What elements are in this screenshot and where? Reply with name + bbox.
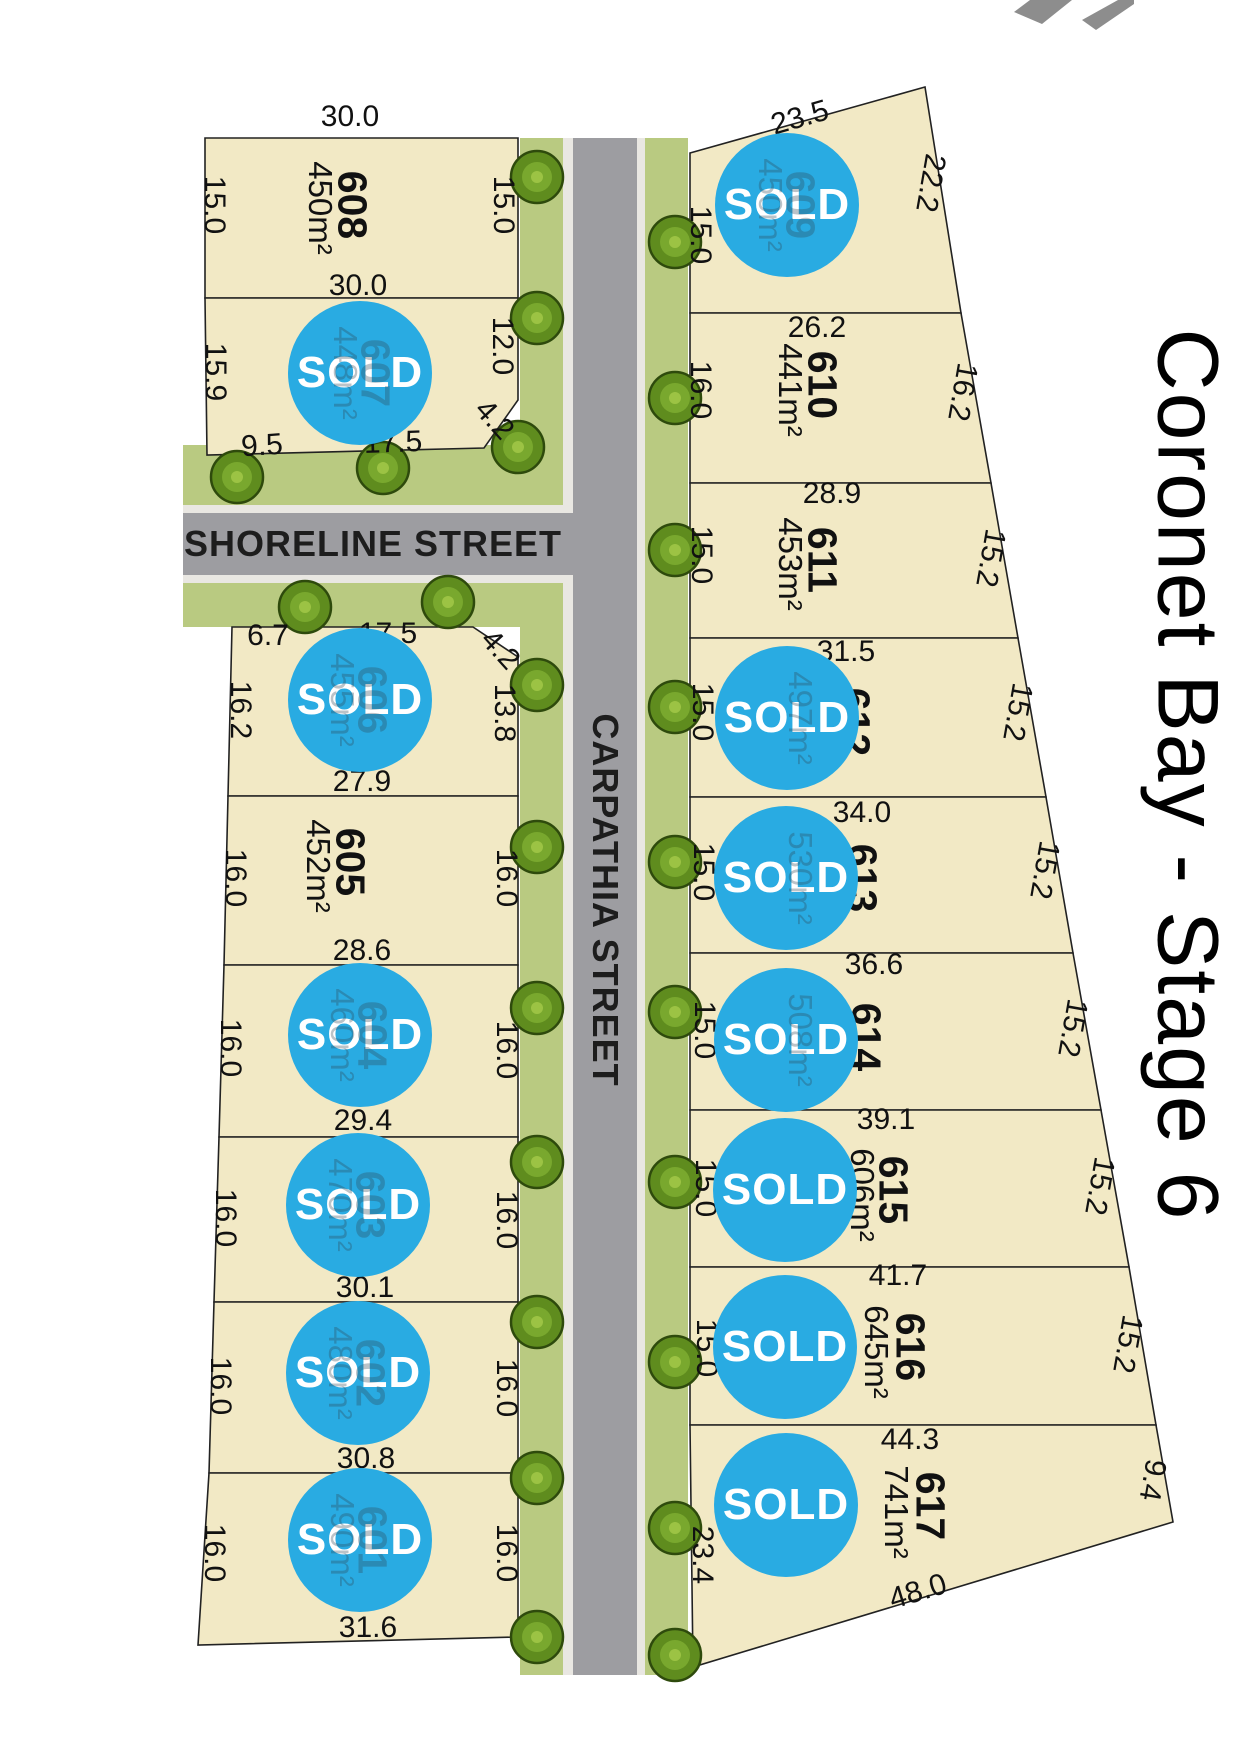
lot-601-area: 490m² [323, 1493, 361, 1587]
lot-606-area: 455m² [323, 653, 361, 747]
lot-614-area: 508m² [781, 993, 819, 1087]
lot-612-area: 497m² [781, 671, 819, 765]
obscured-lot-labels: 601490m²602480m²603470m²604460m²606455m²… [0, 0, 1241, 1755]
lot-604-area: 460m² [323, 988, 361, 1082]
lot-613-area: 530m² [781, 831, 819, 925]
page-title: Coronet Bay - Stage 6 [1138, 329, 1237, 1222]
lot-607-area: 448m² [326, 326, 364, 420]
lot-609-area: 450m² [751, 158, 789, 252]
lot-602-area: 480m² [321, 1326, 359, 1420]
lot-603-area: 470m² [321, 1158, 359, 1252]
